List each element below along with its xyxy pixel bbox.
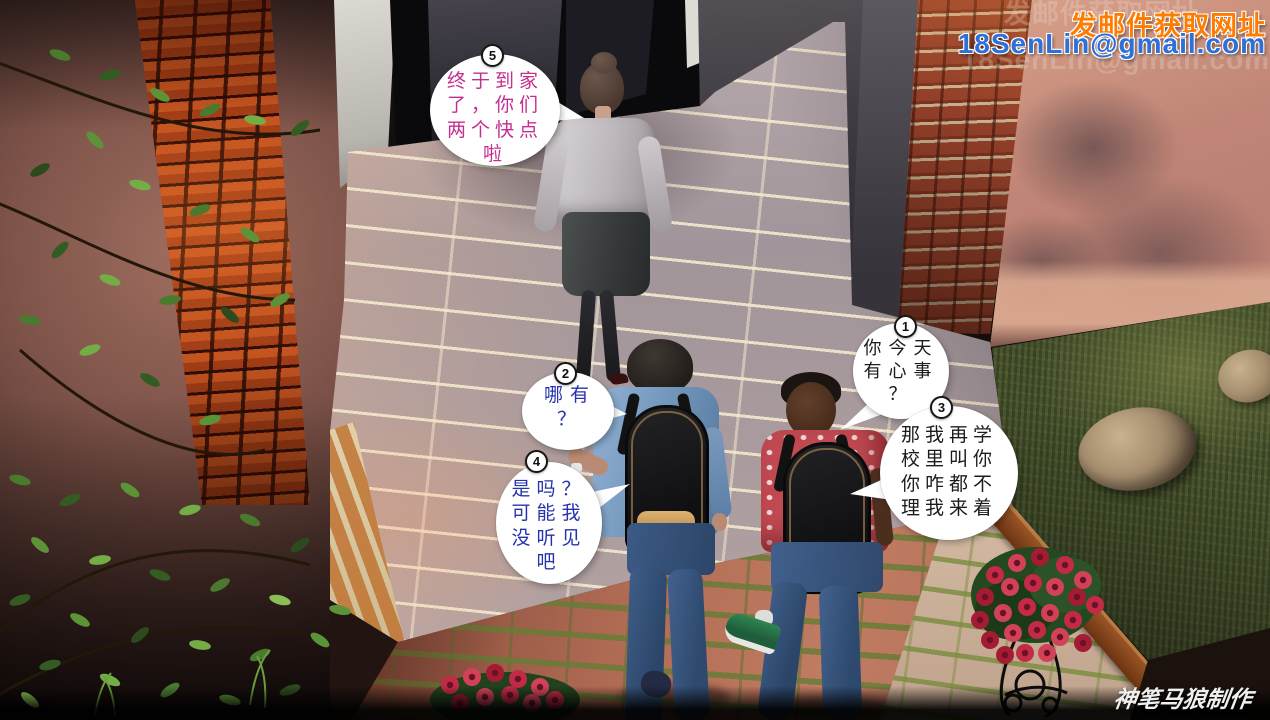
speech-bubble-4: 4 是吗？ 可能我 没听见 吧 — [492, 450, 606, 586]
bubble-1-number: 1 — [894, 315, 917, 338]
watermark-top-line2: 18SenLin@gmail.com — [958, 28, 1266, 60]
speech-bubble-2: 2 哪有 ？ — [518, 362, 628, 454]
speech-bubble-5: 5 终于到家 了，你们 两个快点 啦 — [428, 44, 562, 168]
bubble-5-number: 5 — [481, 44, 504, 67]
bubble-4-number: 4 — [525, 450, 548, 473]
credit-watermark: 神笔马狼制作 — [1112, 680, 1255, 714]
bubble-tails — [0, 0, 1270, 720]
bubble-3-text: 那我再学 校里叫你 你咋都不 理我来着 — [878, 424, 1020, 521]
speech-bubble-3: 3 那我再学 校里叫你 你咋都不 理我来着 — [878, 396, 1020, 542]
comic-panel: 5 终于到家 了，你们 两个快点 啦 2 哪有 ？ 4 是吗？ 可能我 没听见 … — [0, 0, 1270, 720]
bubble-4-text: 是吗？ 可能我 没听见 吧 — [492, 478, 606, 575]
bubble-3-number: 3 — [930, 396, 953, 419]
bubble-2-number: 2 — [554, 362, 577, 385]
bubble-5-text: 终于到家 了，你们 两个快点 啦 — [428, 70, 562, 167]
bubble-2-text: 哪有 ？ — [512, 384, 628, 433]
